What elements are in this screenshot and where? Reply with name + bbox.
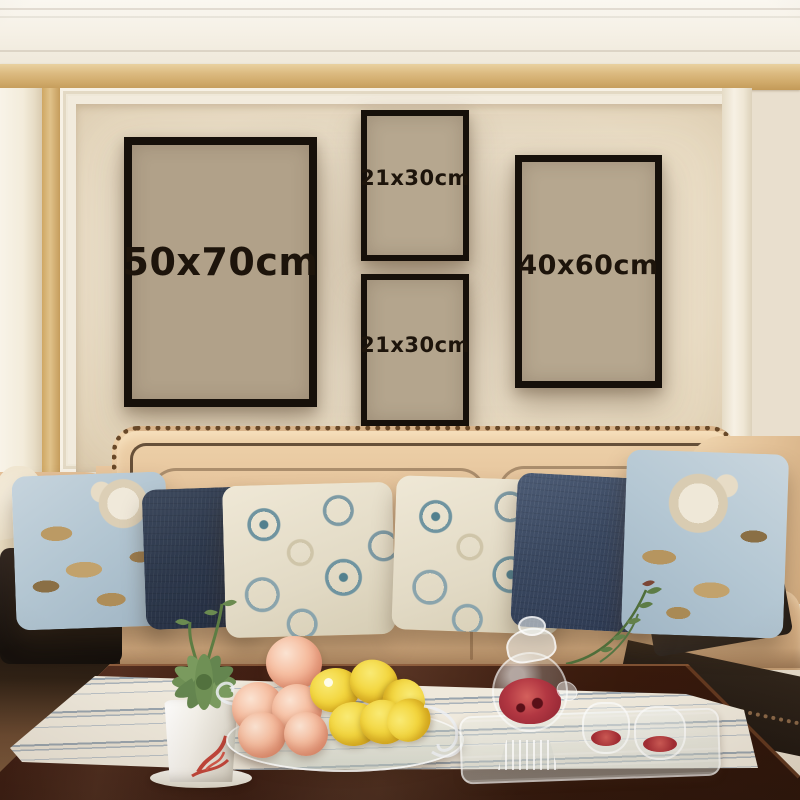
living-room-photo: 50x70cm 21x30cm 21x30cm 40x60cm <box>0 0 800 800</box>
teacup <box>634 706 686 760</box>
teacup-red-tea <box>643 736 677 752</box>
green-sprig <box>560 576 678 668</box>
poster-frame-50x70: 50x70cm <box>124 137 317 407</box>
right-wall-corner <box>752 88 800 472</box>
teapot-lid-knob <box>518 616 546 636</box>
teapot-stand <box>498 740 558 770</box>
poster-frame-21x30-top: 21x30cm <box>361 110 469 261</box>
frame-size-label: 21x30cm <box>360 333 470 357</box>
teacup-red-tea <box>591 730 621 746</box>
lemon-sticker <box>324 678 333 687</box>
wall-gold-strip <box>42 88 60 472</box>
frame-size-label: 40x60cm <box>518 250 658 281</box>
crown-molding-line <box>0 50 800 52</box>
frame-size-label: 50x70cm <box>123 240 319 284</box>
wall-left-pilaster <box>0 88 43 472</box>
crown-molding-line <box>0 16 800 18</box>
frame-size-label: 21x30cm <box>360 166 470 190</box>
crown-molding-line <box>0 8 800 10</box>
poster-frame-40x60: 40x60cm <box>515 155 662 388</box>
teapot-red-tea <box>499 678 561 724</box>
gold-trim-band <box>0 64 800 90</box>
poster-frame-21x30-bottom: 21x30cm <box>361 274 469 426</box>
wall-right-molding <box>722 88 752 472</box>
teacup <box>582 702 630 754</box>
